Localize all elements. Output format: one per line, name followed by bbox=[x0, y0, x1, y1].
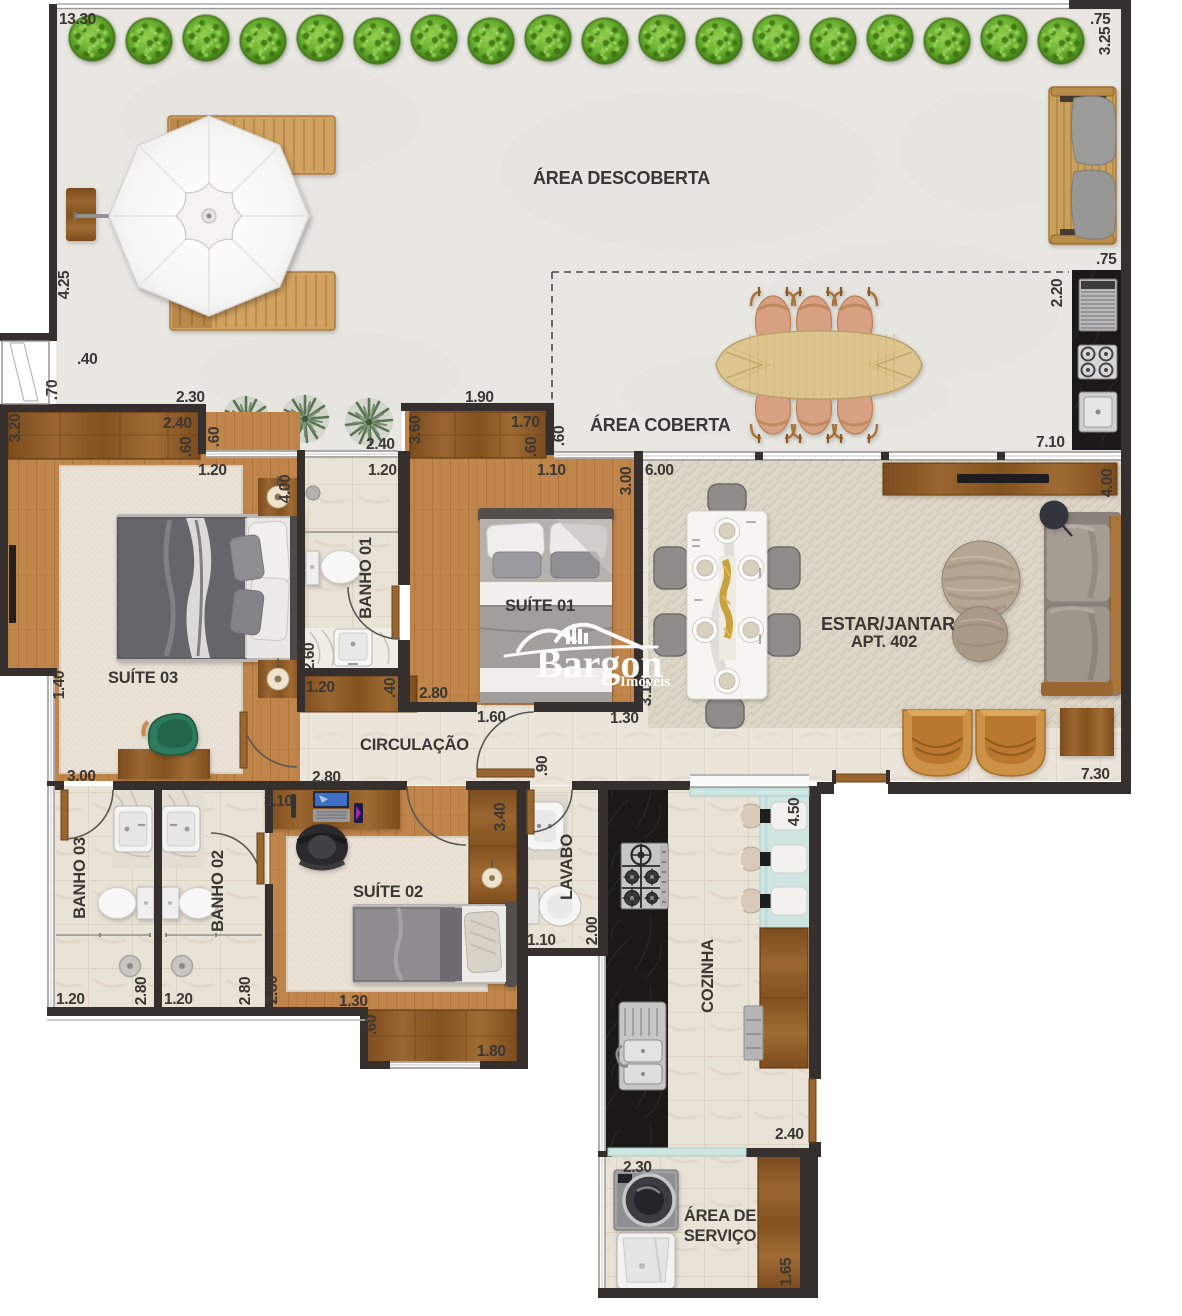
svg-text:SERVIÇO: SERVIÇO bbox=[684, 1227, 757, 1245]
svg-text:1.30: 1.30 bbox=[339, 993, 368, 1010]
svg-text:4.50: 4.50 bbox=[786, 798, 803, 827]
svg-text:1.20: 1.20 bbox=[306, 679, 335, 696]
svg-text:1.20: 1.20 bbox=[368, 462, 397, 479]
svg-text:.75: .75 bbox=[1090, 11, 1111, 28]
svg-text:3.40: 3.40 bbox=[492, 803, 509, 832]
svg-text:4.25: 4.25 bbox=[56, 270, 73, 299]
svg-text:2.00: 2.00 bbox=[584, 917, 601, 946]
svg-text:2.80: 2.80 bbox=[133, 977, 150, 1006]
svg-text:ÁREA COBERTA: ÁREA COBERTA bbox=[590, 414, 731, 435]
svg-text:1.60: 1.60 bbox=[477, 709, 506, 726]
svg-text:2.80: 2.80 bbox=[264, 976, 281, 1005]
svg-text:.60: .60 bbox=[363, 1015, 380, 1035]
svg-text:1.20: 1.20 bbox=[56, 991, 85, 1008]
svg-text:2.80: 2.80 bbox=[237, 977, 254, 1006]
svg-text:2.40: 2.40 bbox=[163, 415, 192, 432]
svg-text:7.10: 7.10 bbox=[1036, 434, 1065, 451]
svg-text:3.60: 3.60 bbox=[407, 416, 424, 445]
svg-text:2.60: 2.60 bbox=[301, 643, 318, 672]
svg-text:2.80: 2.80 bbox=[312, 769, 341, 786]
svg-text:2.30: 2.30 bbox=[623, 1159, 652, 1176]
svg-text:Imóveis: Imóveis bbox=[620, 674, 670, 690]
svg-text:13.30: 13.30 bbox=[59, 11, 96, 28]
svg-text:4.00: 4.00 bbox=[277, 475, 294, 504]
svg-text:.60: .60 bbox=[523, 437, 540, 457]
svg-text:BANHO 01: BANHO 01 bbox=[357, 537, 375, 619]
svg-text:.40: .40 bbox=[77, 351, 97, 368]
svg-text:CIRCULAÇÃO: CIRCULAÇÃO bbox=[360, 734, 469, 754]
svg-text:APT. 402: APT. 402 bbox=[851, 633, 917, 651]
svg-text:2.80: 2.80 bbox=[419, 685, 448, 702]
svg-text:1.65: 1.65 bbox=[778, 1257, 795, 1286]
svg-text:.70: .70 bbox=[44, 380, 61, 400]
svg-text:BANHO 03: BANHO 03 bbox=[71, 837, 89, 919]
svg-text:.60: .60 bbox=[551, 426, 568, 446]
svg-text:1.20: 1.20 bbox=[164, 991, 193, 1008]
svg-text:3.00: 3.00 bbox=[618, 467, 635, 496]
svg-text:3.25: 3.25 bbox=[1097, 26, 1114, 55]
svg-text:COZINHA: COZINHA bbox=[699, 939, 717, 1013]
svg-text:2.40: 2.40 bbox=[366, 436, 395, 453]
svg-text:3.20: 3.20 bbox=[7, 414, 24, 443]
svg-text:SUÍTE 03: SUÍTE 03 bbox=[108, 668, 178, 687]
svg-text:7.30: 7.30 bbox=[1081, 766, 1110, 783]
svg-text:2.40: 2.40 bbox=[775, 1126, 804, 1143]
svg-text:1.70: 1.70 bbox=[511, 414, 540, 431]
svg-text:1.80: 1.80 bbox=[477, 1043, 506, 1060]
svg-text:SUÍTE 01: SUÍTE 01 bbox=[505, 596, 575, 615]
svg-text:.60: .60 bbox=[178, 437, 195, 457]
svg-text:ESTAR/JANTAR: ESTAR/JANTAR bbox=[821, 614, 955, 634]
svg-text:.40: .40 bbox=[382, 678, 399, 698]
svg-text:3.00: 3.00 bbox=[67, 768, 96, 785]
svg-text:1.10: 1.10 bbox=[537, 462, 566, 479]
svg-text:3.10: 3.10 bbox=[264, 793, 293, 810]
svg-text:.60: .60 bbox=[206, 427, 223, 447]
svg-text:4.00: 4.00 bbox=[1099, 469, 1116, 498]
svg-text:1.20: 1.20 bbox=[198, 462, 227, 479]
svg-text:ÁREA DE: ÁREA DE bbox=[684, 1206, 756, 1225]
svg-text:2.30: 2.30 bbox=[176, 389, 205, 406]
svg-text:2.20: 2.20 bbox=[1049, 279, 1066, 308]
svg-text:1.90: 1.90 bbox=[465, 389, 494, 406]
svg-text:6.00: 6.00 bbox=[645, 462, 674, 479]
svg-text:1.30: 1.30 bbox=[610, 710, 639, 727]
svg-text:ÁREA DESCOBERTA: ÁREA DESCOBERTA bbox=[533, 167, 710, 188]
svg-text:LAVABO: LAVABO bbox=[558, 834, 576, 900]
svg-text:1.40: 1.40 bbox=[51, 671, 68, 700]
svg-text:SUÍTE 02: SUÍTE 02 bbox=[353, 882, 423, 901]
svg-text:BANHO 02: BANHO 02 bbox=[209, 850, 227, 932]
svg-text:.75: .75 bbox=[1096, 251, 1117, 268]
svg-text:.90: .90 bbox=[534, 756, 551, 776]
svg-text:1.10: 1.10 bbox=[527, 932, 556, 949]
